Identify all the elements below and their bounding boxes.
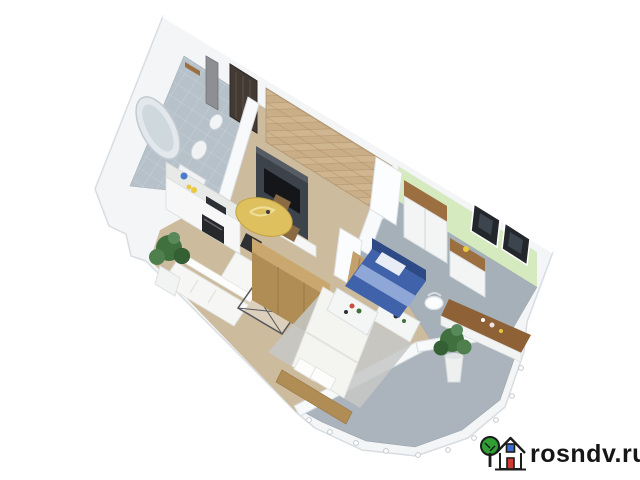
floor-plan-screenshot: rosndv.ru [0, 0, 640, 480]
kitchen-flowers [181, 173, 188, 180]
house-icon [495, 438, 526, 470]
hallway-mirror-panel [206, 56, 218, 110]
watermark: rosndv.ru [481, 437, 640, 470]
balcony-plant-pot [445, 356, 463, 382]
floor-plan-render: rosndv.ru [0, 0, 640, 480]
watermark-text: rosndv.ru [530, 440, 640, 468]
kids-desk-chair [425, 297, 443, 310]
fruit-bowl [191, 187, 197, 193]
